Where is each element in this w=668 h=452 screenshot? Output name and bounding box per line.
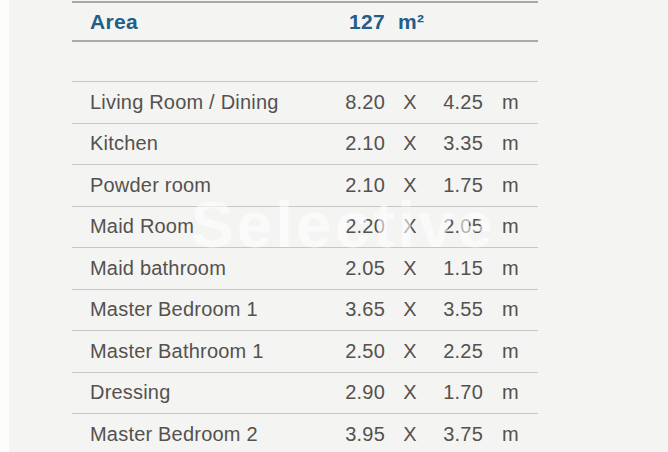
dimension-separator: X [385, 91, 435, 114]
spacer-row [72, 42, 538, 82]
room-unit: m [483, 423, 538, 446]
room-name: Maid bathroom [72, 257, 325, 280]
room-height: 1.75 [435, 174, 483, 197]
room-height: 2.25 [435, 340, 483, 363]
room-width: 2.50 [325, 340, 385, 363]
area-unit-label: m² [385, 10, 435, 34]
room-unit: m [483, 298, 538, 321]
room-height: 2.05 [435, 215, 483, 238]
room-unit: m [483, 174, 538, 197]
dimension-separator: X [385, 257, 435, 280]
table-row: Master Bathroom 1 2.50 X 2.25 m [72, 331, 538, 373]
room-height: 1.15 [435, 257, 483, 280]
room-name: Powder room [72, 174, 325, 197]
room-width: 8.20 [325, 91, 385, 114]
dimension-separator: X [385, 423, 435, 446]
dimension-separator: X [385, 381, 435, 404]
left-edge-strip [0, 0, 9, 452]
room-height: 3.75 [435, 423, 483, 446]
room-height: 4.25 [435, 91, 483, 114]
table-row: Kitchen 2.10 X 3.35 m [72, 124, 538, 166]
room-unit: m [483, 91, 538, 114]
room-width: 2.20 [325, 215, 385, 238]
room-height: 1.70 [435, 381, 483, 404]
room-width: 2.05 [325, 257, 385, 280]
table-row: Powder room 2.10 X 1.75 m [72, 165, 538, 207]
table-row: Maid Room 2.20 X 2.05 m [72, 207, 538, 249]
area-table: Area 127 m² Living Room / Dining 8.20 X … [72, 1, 538, 452]
room-unit: m [483, 132, 538, 155]
dimension-separator: X [385, 132, 435, 155]
table-row: Master Bedroom 2 3.95 X 3.75 m [72, 414, 538, 452]
room-unit: m [483, 381, 538, 404]
total-area-value: 127 [325, 10, 385, 34]
table-row: Maid bathroom 2.05 X 1.15 m [72, 248, 538, 290]
area-header-label: Area [72, 10, 325, 34]
table-row: Master Bedroom 1 3.65 X 3.55 m [72, 290, 538, 332]
room-name: Kitchen [72, 132, 325, 155]
room-width: 2.90 [325, 381, 385, 404]
room-width: 3.65 [325, 298, 385, 321]
room-name: Living Room / Dining [72, 91, 325, 114]
dimension-separator: X [385, 340, 435, 363]
room-height: 3.55 [435, 298, 483, 321]
table-row: Dressing 2.90 X 1.70 m [72, 373, 538, 415]
room-name: Master Bathroom 1 [72, 340, 325, 363]
dimension-separator: X [385, 215, 435, 238]
room-name: Dressing [72, 381, 325, 404]
room-unit: m [483, 257, 538, 280]
room-width: 2.10 [325, 132, 385, 155]
dimension-separator: X [385, 298, 435, 321]
room-unit: m [483, 215, 538, 238]
room-unit: m [483, 340, 538, 363]
table-header-row: Area 127 m² [72, 3, 538, 42]
area-table-page: Area 127 m² Living Room / Dining 8.20 X … [0, 0, 668, 452]
table-row: Living Room / Dining 8.20 X 4.25 m [72, 82, 538, 124]
dimension-separator: X [385, 174, 435, 197]
room-width: 2.10 [325, 174, 385, 197]
room-height: 3.35 [435, 132, 483, 155]
room-name: Master Bedroom 1 [72, 298, 325, 321]
room-name: Master Bedroom 2 [72, 423, 325, 446]
room-width: 3.95 [325, 423, 385, 446]
room-name: Maid Room [72, 215, 325, 238]
